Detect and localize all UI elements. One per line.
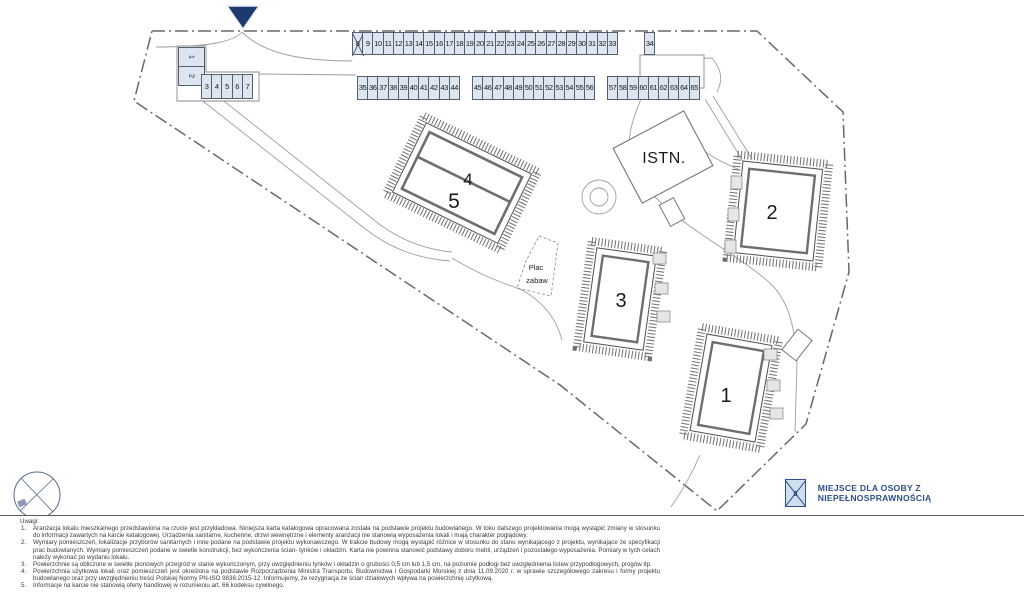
parking-spot-number: 32 [598,40,606,48]
legend-label: MIEJSCE DLA OSOBY Z NIEPEŁNOSPRAWNOŚCIĄ [818,483,1024,503]
building-1: 1 [683,327,812,449]
parking-spot-number: 53 [555,84,563,92]
notes-title: Uwagi: [20,518,660,525]
parking-spot-number: 10 [374,40,382,48]
note-item: Wymiary pomieszczeń, lokalizacje przybor… [20,539,660,560]
parking-spot-number: 40 [410,84,418,92]
note-item: Powierzchnie są obliczone w świetle pion… [20,561,660,568]
parking-spot-number: 36 [369,84,377,92]
building-3-label: 3 [615,290,626,312]
building-5-label: 5 [448,190,460,213]
building-2-label: 2 [766,202,777,224]
parking-spot-number: 25 [527,40,535,48]
parking-row-57-65: 575859606162636465 [607,76,700,100]
parking-spot-number: 41 [420,84,428,92]
parking-row-34: 34 [644,32,655,55]
parking-spot-number: 42 [430,84,438,92]
parking-row-45-56: 454647484950515253545556 [472,76,595,100]
parking-spot-number: 5 [225,83,229,91]
parking-spot-65: 65 [689,76,700,100]
note-item: Aranżacja lokalu mieszkalnego przedstawi… [20,525,660,539]
parking-spot-number: 23 [507,40,515,48]
parking-spot-number: 56 [586,84,594,92]
parking-spot-number: 24 [517,40,525,48]
parking-spot-number: 63 [670,84,678,92]
parking-spot-number: 12 [395,40,403,48]
parking-spot-number: 49 [515,84,523,92]
parking-spot-number: 57 [609,84,617,92]
parking-spot-number: 9 [366,40,370,48]
parking-spot-number: 2 [188,74,196,78]
parking-spot-number: 39 [400,84,408,92]
note-item: Powierzchnia użytkowa lokali oraz pomies… [20,568,660,582]
parking-spot-number: 6 [235,83,239,91]
parking-spot-number: 43 [440,84,448,92]
parking-spot-number: 30 [578,40,586,48]
parking-spot-1: 1 [178,47,205,67]
small-shed [782,329,812,361]
parking-spot-number: 60 [639,84,647,92]
parking-spot-number: 19 [466,40,474,48]
legend-disabled-parking: 8 MIEJSCE DLA OSOBY Z NIEPEŁNOSPRAWNOŚCI… [785,479,1024,507]
site-plan-page: 4 5 ISTN. 2 [0,0,1024,604]
parking-spot-number: 15 [425,40,433,48]
parking-spot-33: 33 [607,32,618,55]
parking-spot-number: 35 [359,84,367,92]
parking-row-8-33: 8910111213141516171819202122232425262728… [352,32,618,55]
divider-line [0,515,1024,516]
parking-spot-number: 26 [537,40,545,48]
building-3-stairs [653,253,670,322]
parking-spot-number: 27 [547,40,555,48]
disabled-parking-icon: 8 [785,479,806,507]
building-4-5: 4 5 [386,116,538,250]
parking-spot-44: 44 [449,76,460,100]
parking-spot-number: 33 [609,40,617,48]
parking-spot-number: 44 [451,84,459,92]
parking-row-35-44: 35363738394041424344 [357,76,460,100]
parking-spot-number: 34 [646,40,654,48]
playground-area: Plac zabaw [517,236,558,296]
parking-spot-56: 56 [584,76,595,100]
parking-spot-number: 65 [690,84,698,92]
parking-spot-number: 14 [415,40,423,48]
parking-spot-number: 29 [568,40,576,48]
parking-spot-number: 16 [435,40,443,48]
parking-spot-number: 52 [545,84,553,92]
parking-spot-number: 7 [245,83,249,91]
parking-spot-number: 64 [680,84,688,92]
parking-spot-number: 21 [486,40,494,48]
parking-spot-number: 28 [558,40,566,48]
parking-spot-number: 62 [660,84,668,92]
parking-spot-number: 46 [484,84,492,92]
building-2: 2 [725,154,829,267]
parking-spot-number: 38 [389,84,397,92]
building-1-stairs [764,349,783,419]
compass-rose-icon [14,472,61,516]
building-1-label: 1 [720,385,731,407]
parking-spot-number: 48 [504,84,512,92]
parking-spot-number: 17 [446,40,454,48]
parking-spot-number: 8 [356,40,360,48]
building-existing-label: ISTN. [642,150,685,167]
parking-spot-number: 4 [215,83,219,91]
parking-spot-number: 55 [576,84,584,92]
building-4-label: 4 [463,170,472,189]
notes-section: Uwagi: Aranżacja lokalu mieszkalnego prz… [20,518,660,589]
parking-spot-number: 59 [629,84,637,92]
parking-spot-number: 3 [205,83,209,91]
parking-spot-number: 31 [588,40,596,48]
parking-spot-number: 11 [385,40,392,48]
parking-spot-number: 20 [476,40,484,48]
playground-label-line2: zabaw [526,276,548,285]
parking-row-3-7: 34567 [201,74,253,99]
parking-spot-number: 51 [535,84,543,92]
building-3: 3 [577,241,670,357]
notes-list: Aranżacja lokalu mieszkalnego przedstawi… [20,525,660,589]
parking-spot-34: 34 [644,32,655,55]
parking-spot-number: 61 [650,84,658,92]
parking-spot-number: 54 [566,84,574,92]
note-item: Informacje na karcie nie stanowią oferty… [20,582,660,589]
building-existing: ISTN. [613,111,713,227]
parking-spot-number: 13 [405,40,413,48]
parking-spot-number: 47 [494,84,502,92]
parking-spot-number: 37 [379,84,387,92]
parking-spot-7: 7 [242,74,253,99]
parking-spot-number: 22 [496,40,504,48]
parking-spot-number: 1 [188,55,196,59]
parking-spot-number: 45 [474,84,482,92]
parking-spot-number: 50 [525,84,533,92]
entrance-marker-icon [227,6,259,29]
playground-label-line1: Plac [529,263,544,272]
parking-spot-number: 58 [619,84,627,92]
parking-spot-number: 18 [456,40,464,48]
legend-icon-number: 8 [793,489,797,498]
